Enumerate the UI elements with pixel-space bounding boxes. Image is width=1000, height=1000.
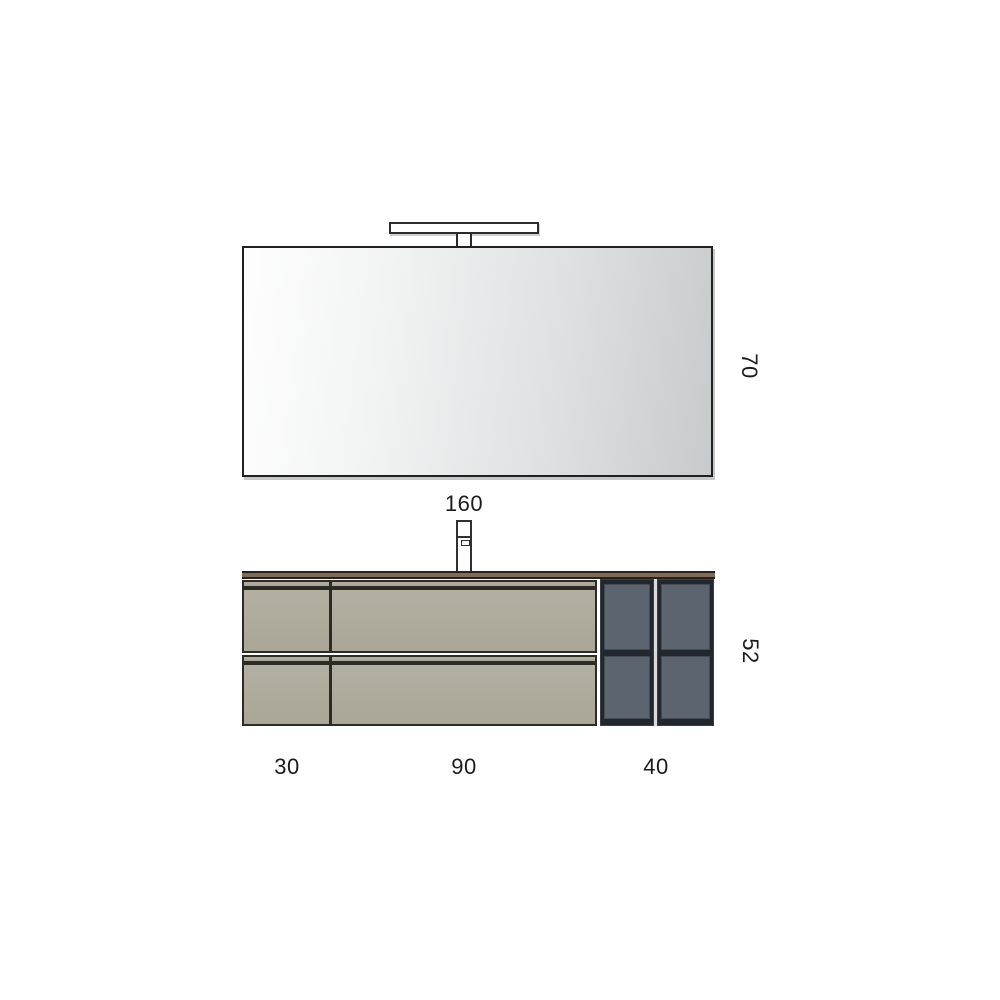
- drawer-front-lower-center: [330, 663, 597, 726]
- drawer-top-rail-left: [242, 580, 331, 588]
- drawer-front-upper-left: [242, 588, 331, 653]
- drawer-mid-rail-left: [242, 655, 331, 663]
- shelf-column-left: [600, 579, 654, 726]
- drawer-mid-rail-center: [330, 655, 597, 663]
- dimension-module-left-width: 30: [274, 754, 299, 780]
- faucet: [456, 520, 472, 573]
- shelf-column-right: [657, 579, 714, 726]
- dimension-module-center-width: 90: [451, 754, 476, 780]
- mirror: [242, 246, 713, 477]
- countertop: [242, 571, 715, 579]
- open-shelf-unit: [600, 579, 714, 726]
- vanity-technical-drawing: 70 160 52 30 90 40: [0, 0, 1000, 1000]
- faucet-handle-line: [458, 536, 470, 538]
- shelf-compartment: [604, 656, 650, 719]
- drawer-cabinet: [242, 579, 597, 726]
- drawer-top-rail-center: [330, 580, 597, 588]
- faucet-spout: [461, 540, 470, 546]
- dimension-mirror-height: 70: [736, 353, 762, 378]
- dimension-total-width: 160: [445, 491, 483, 517]
- dimension-module-right-width: 40: [643, 754, 668, 780]
- dimension-cabinet-height: 52: [737, 638, 763, 663]
- shelf-compartment: [661, 584, 710, 650]
- shelf-compartment: [604, 584, 650, 650]
- drawer-front-upper-center: [330, 588, 597, 653]
- shelf-compartment: [661, 656, 710, 719]
- wall-light-bar: [389, 222, 539, 234]
- drawer-front-lower-left: [242, 663, 331, 726]
